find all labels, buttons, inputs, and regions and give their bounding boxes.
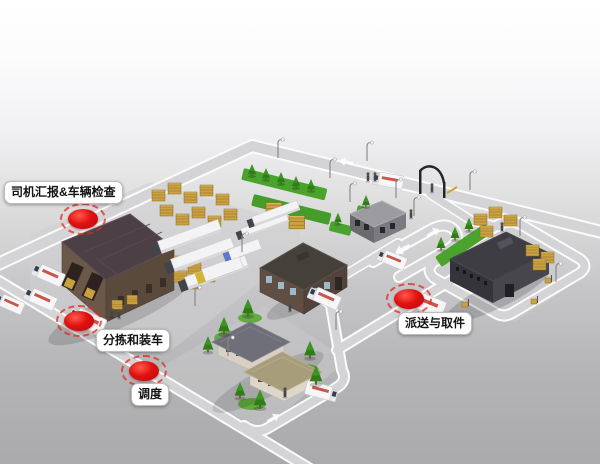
marker-driver-report[interactable] bbox=[60, 203, 106, 235]
label-sorting-loading: 分拣和装车 bbox=[96, 329, 170, 352]
marker-core bbox=[394, 289, 424, 309]
marker-core bbox=[129, 361, 159, 381]
marker-core bbox=[64, 311, 94, 331]
label-driver-report: 司机汇报&车辆检查 bbox=[4, 181, 123, 204]
isometric-logistics-scene: 司机汇报&车辆检查 分拣和装车 调度 派送与取件 bbox=[0, 0, 600, 464]
marker-core bbox=[68, 209, 98, 229]
marker-sorting-loading[interactable] bbox=[56, 305, 102, 337]
label-dispatch: 调度 bbox=[131, 383, 169, 406]
label-delivery-pickup: 派送与取件 bbox=[398, 312, 472, 335]
marker-delivery-pickup[interactable] bbox=[386, 283, 432, 315]
